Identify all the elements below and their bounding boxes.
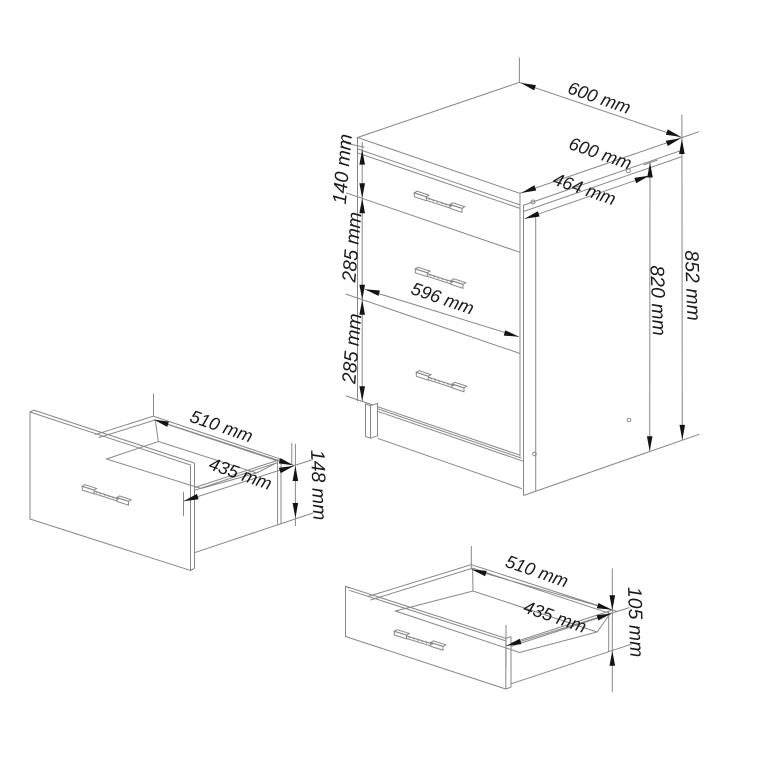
svg-text:105 mm: 105 mm (623, 586, 647, 657)
svg-text:820 mm: 820 mm (645, 265, 669, 336)
svg-text:148 mm: 148 mm (306, 449, 330, 520)
svg-text:852 mm: 852 mm (680, 250, 704, 321)
